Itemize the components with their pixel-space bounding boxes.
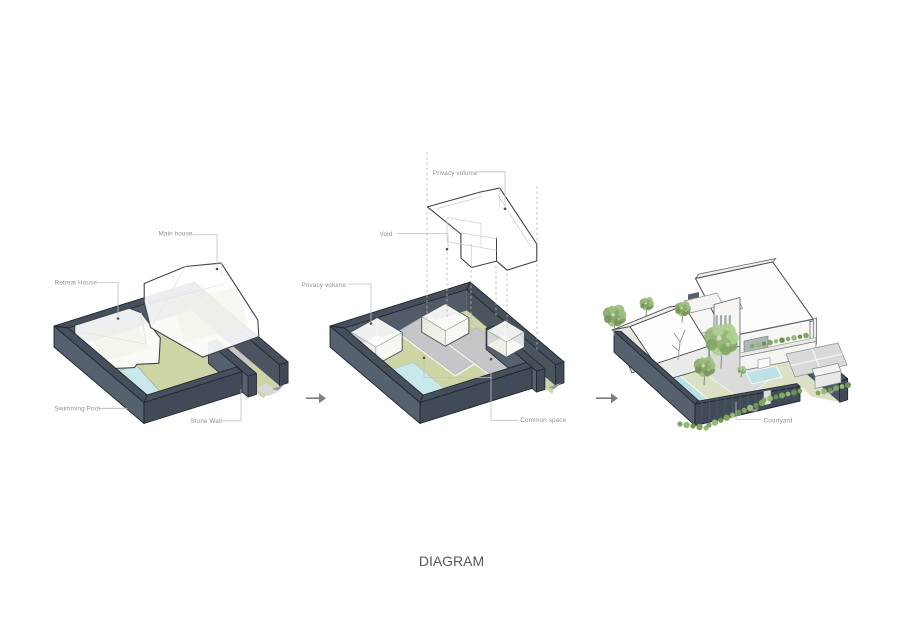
svg-text:Main house: Main house [159,231,193,238]
svg-text:Privacy volume: Privacy volume [301,282,346,289]
svg-text:Retreat House: Retreat House [55,280,98,287]
svg-text:Void: Void [380,231,393,238]
svg-text:Courtyard: Courtyard [764,418,793,425]
svg-text:Privacy volume: Privacy volume [433,170,478,177]
svg-text:Common space: Common space [520,417,566,424]
svg-text:DIAGRAM: DIAGRAM [419,553,484,569]
svg-text:Swimming Pool: Swimming Pool [55,405,100,412]
svg-text:Stone Wall: Stone Wall [190,418,222,425]
